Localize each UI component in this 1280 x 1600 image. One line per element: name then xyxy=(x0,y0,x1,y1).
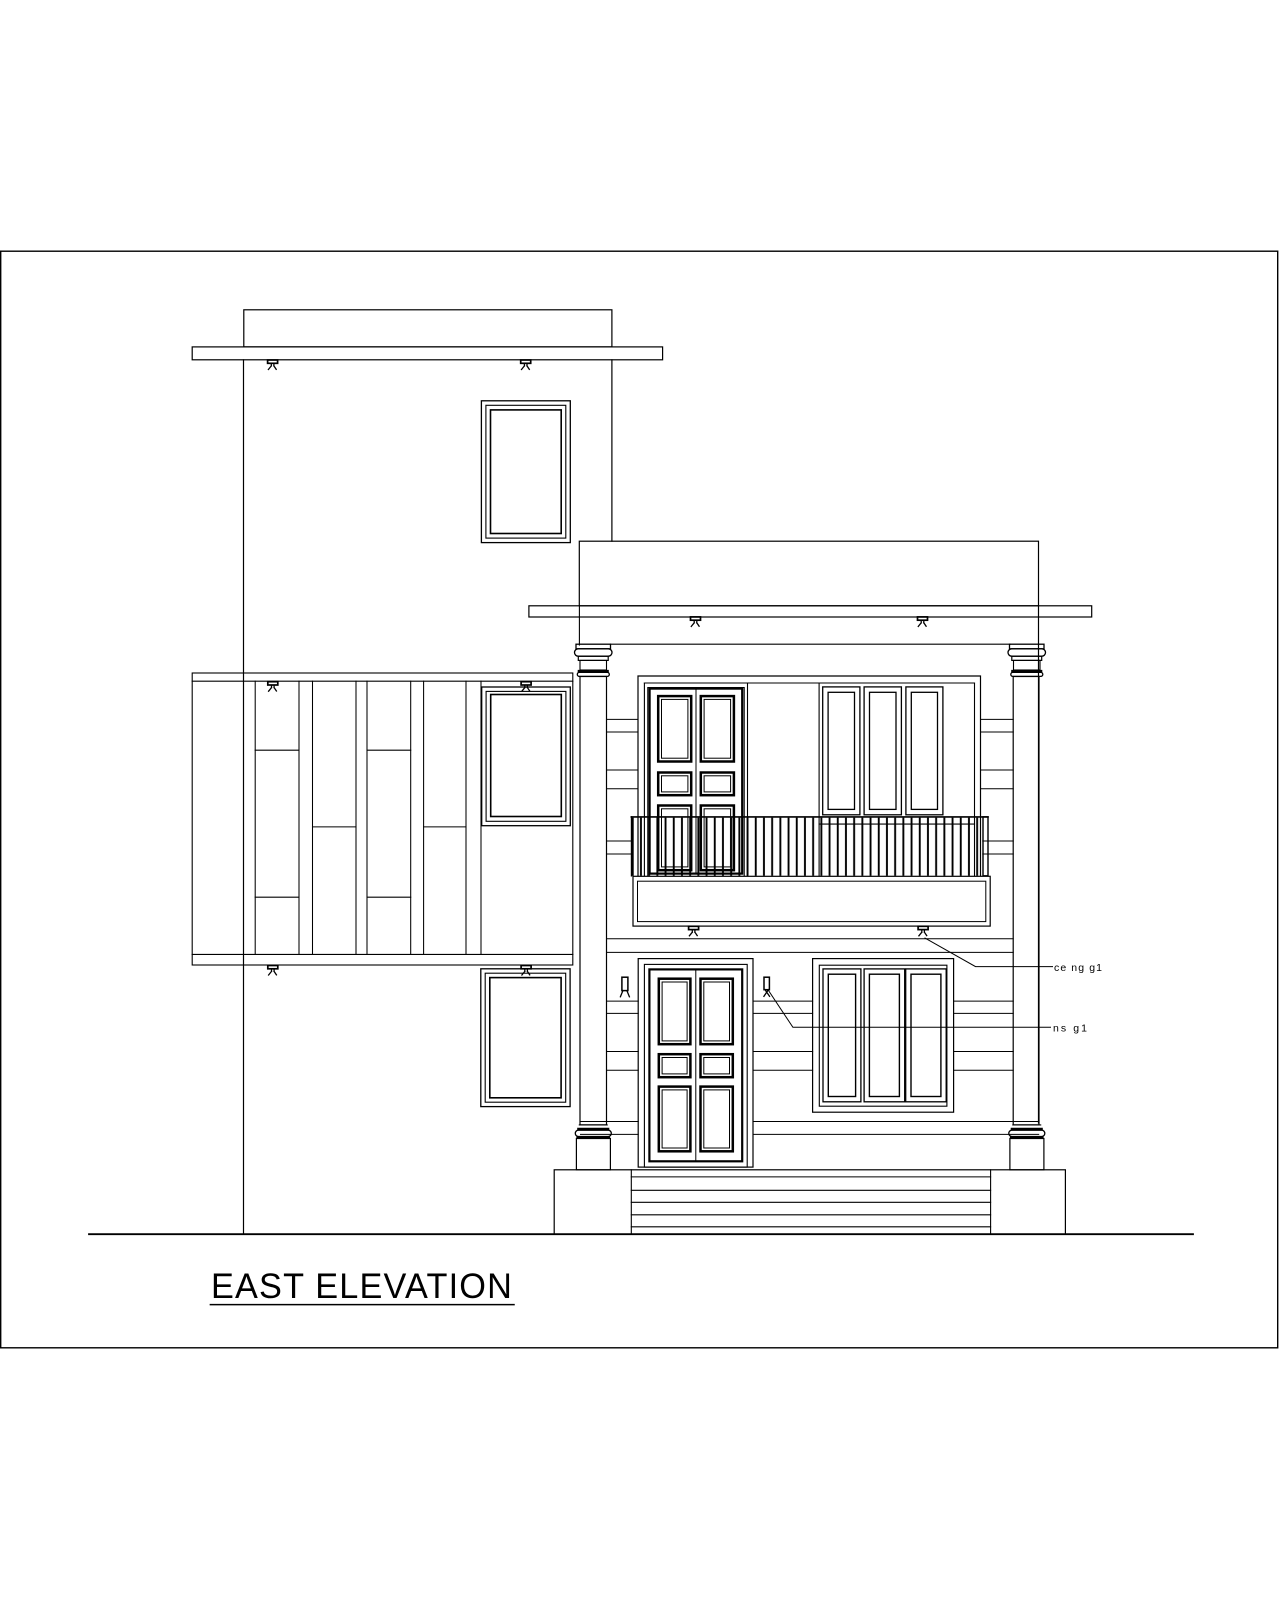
svg-text:ce ng g1: ce ng g1 xyxy=(1054,962,1102,974)
svg-text:ns g1: ns g1 xyxy=(1053,1022,1087,1034)
svg-text:EAST ELEVATION: EAST ELEVATION xyxy=(211,1267,513,1306)
